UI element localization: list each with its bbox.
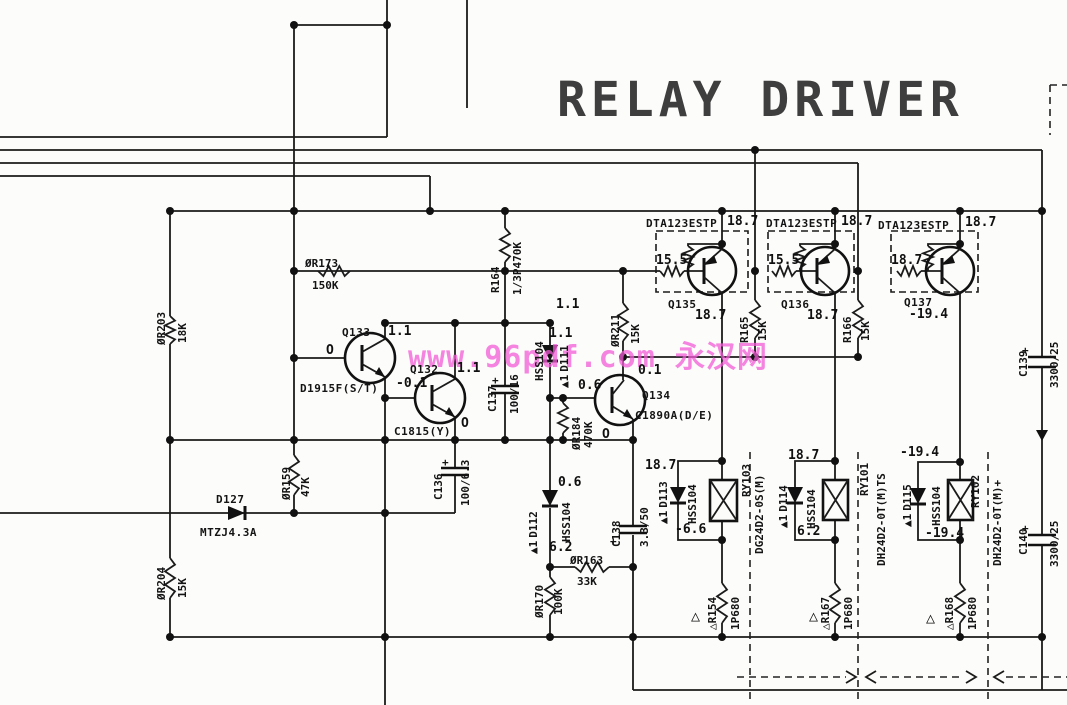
ref-RY103: RY103 [740,464,753,497]
ref-R167: △R167 [819,597,832,630]
val-R159: 47K [299,477,312,497]
part-Q137: DTA123ESTP [878,219,949,232]
ref-D113: ▲1D113 [657,481,670,524]
val-R170: 100K [552,588,565,615]
voltage-label: 1.1 [549,326,573,341]
voltage-label: 1.1 [388,324,412,339]
ref-Q132: Q132 [410,363,439,376]
ref-R163: ØR163 [569,554,603,567]
part-Q132: C1815(Y) [394,425,451,438]
part-Q133: D1915F(S/T) [300,382,378,395]
ref-D111: ▲1D111 [558,345,571,388]
test-point-Q134: O [602,427,610,442]
ref-R173: ØR173 [304,257,338,270]
part-RY103: DG24D2-0S(M) [753,475,766,554]
warning-triangle-icon: △ [809,607,818,625]
ref-D112: ▲1D112 [527,511,540,554]
polarity-plus-C137: + [492,374,499,387]
ref-D114: ▲1D114 [777,485,790,528]
polarity-plus-C138: + [610,535,617,548]
relay-coil-RY103 [710,480,737,521]
ref-R168: △R168 [943,597,956,630]
ref-R203: ØR203 [155,312,168,346]
voltage-label: 6.2 [549,540,572,555]
out-voltage-Q135: 18.7 [695,308,726,323]
part-D127: MTZJ4.3A [200,526,257,539]
voltage-label: -0.1 [396,376,427,391]
ref-Q134: Q134 [642,389,671,402]
ref-Q136: Q136 [781,298,810,311]
block-boundary-dashes [750,85,1067,700]
ref-R211: ØR211 [609,314,622,348]
part-Q134: C1890A(D/E) [635,409,713,422]
internal-r-Q136: 15.5 [768,253,799,268]
warning-triangle-icon: △ [926,609,935,627]
ref-C137: C137 [486,386,499,413]
test-point-Q132: O [461,416,469,431]
val-R184: 470K [582,421,595,448]
internal-r-Q137: 18.7 [891,253,922,268]
ref-R166: R166 [841,316,854,343]
ref-D127: D127 [216,493,245,506]
part-D112: HSS104 [560,502,573,542]
ref-RY102: RY102 [969,475,982,508]
val-C138: 3.3/50 [638,507,651,547]
val-R166: 15K [859,321,872,341]
out-voltage-Q137: -19.4 [909,307,948,322]
val-R163: 33K [577,575,597,588]
down-arrow [1036,430,1048,441]
part-Q135: DTA123ESTP [646,217,717,230]
voltage-label: -19.4 [900,445,939,460]
voltage-label: 0.1 [638,363,662,378]
schematic-page: RELAY DRIVER www.96pdf.com 永汉网 Q133 D191… [0,0,1067,705]
val-C139: 3300/25 [1048,342,1061,388]
val-R173: 150K [312,279,339,292]
ref-D115: ▲1D115 [901,484,914,527]
rail-voltage-Q135: 18.7 [727,214,758,229]
ref-R204: ØR204 [155,567,168,601]
val-R211: 15K [629,324,642,344]
val-C137: 100/16 [508,374,521,414]
polarity-plus-C136: + [442,456,449,469]
val-C140: 3300/25 [1048,521,1061,567]
ref-R159: ØR159 [280,467,293,501]
part-D114: HSS104 [805,489,818,529]
voltage-label: 6.2 [797,524,820,539]
ref-Q133: Q133 [342,326,371,339]
val-R164: 1/3P470K [511,242,524,295]
voltage-label: 0.6 [558,475,582,490]
schematic-title: RELAY DRIVER [557,72,964,128]
polarity-plus-C140: + [1022,522,1029,535]
voltage-label: -6.6 [675,522,706,537]
val-R154: 1P680 [729,597,742,630]
ref-Q135: Q135 [668,298,697,311]
resistor-zigzags [165,228,965,623]
relay-driver-schematic: RELAY DRIVER www.96pdf.com 永汉网 Q133 D191… [0,0,1067,705]
ref-R165: R165 [738,317,751,344]
part-D113: HSS104 [686,484,699,524]
ref-R154: △R154 [706,597,719,630]
part-D111: HSS104 [533,341,546,381]
ref-R164: R164 [489,266,502,293]
internal-r-Q135: 15.5 [656,253,687,268]
rail-voltage-Q137: 18.7 [965,215,996,230]
voltage-label: 18.7 [645,458,676,473]
relay-coil-RY101 [823,480,848,520]
ref-C136: C136 [432,473,445,500]
part-RY102: DH24D2-0T(M)+ [991,480,1004,566]
val-R167: 1P680 [842,597,855,630]
val-C136: 100/6.3 [459,460,472,506]
part-Q136: DTA123ESTP [766,217,837,230]
voltage-label: 1.1 [457,361,481,376]
bottom-arrowheads [846,671,1004,683]
out-voltage-Q136: 18.7 [807,308,838,323]
part-D115: HSS104 [930,486,943,526]
rail-voltage-Q136: 18.7 [841,214,872,229]
test-point-Q133: O [326,343,334,358]
val-R203: 18K [176,323,189,343]
transistor-Q133 [345,333,395,383]
polarity-plus-C139: + [1022,344,1029,357]
warning-triangle-icon: △ [691,607,700,625]
val-R204: 15K [176,578,189,598]
voltage-label: 18.7 [788,448,819,463]
voltage-label: 0.6 [578,378,602,393]
ref-R170: ØR170 [533,585,546,619]
voltage-label: -19.4 [925,526,964,541]
val-R168: 1P680 [966,597,979,630]
part-RY101: DH24D2-0T(M)TS [875,473,888,566]
val-R165: 15K [756,321,769,341]
voltage-label: 1.1 [556,297,580,312]
ref-RY101: RY101 [858,463,871,496]
